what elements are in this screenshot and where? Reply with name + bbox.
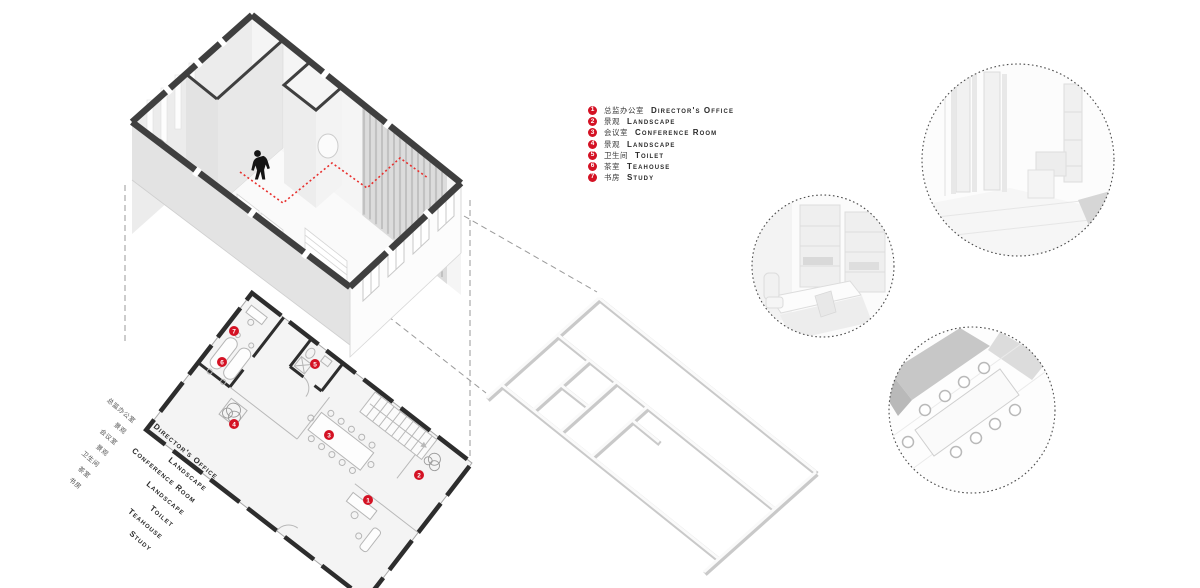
- legend-en: Landscape: [627, 140, 675, 149]
- legend-item: 6 茶室 Teahouse: [588, 161, 734, 172]
- legend-zh: 总监办公室: [604, 105, 644, 116]
- framing-diagram: [487, 298, 817, 574]
- legend-zh: 会议室: [604, 127, 628, 138]
- board-drawing: 1 2 3 4 5 6 7: [0, 0, 1200, 588]
- plan-marker-2: 2: [414, 470, 424, 480]
- svg-text:1: 1: [366, 497, 370, 504]
- legend-badge-7: 7: [588, 173, 597, 182]
- legend-badge-5: 5: [588, 151, 597, 160]
- plan-marker-1: 1: [363, 495, 373, 505]
- legend-en: Landscape: [627, 117, 675, 126]
- legend-zh: 卫生间: [604, 150, 628, 161]
- detail-circle-office-window: [920, 62, 1116, 258]
- svg-text:7: 7: [232, 328, 236, 335]
- legend-zh: 景观: [604, 116, 620, 127]
- svg-text:2: 2: [417, 472, 421, 479]
- legend: 1 总监办公室 Director's Office 2 景观 Landscape…: [588, 105, 734, 183]
- legend-badge-1: 1: [588, 106, 597, 115]
- legend-en: Teahouse: [627, 162, 670, 171]
- legend-badge-4: 4: [588, 140, 597, 149]
- axonometric-view: [132, 15, 461, 357]
- plan-marker-3: 3: [324, 430, 334, 440]
- legend-item: 4 景观 Landscape: [588, 139, 734, 150]
- legend-item: 3 会议室 Conference Room: [588, 127, 734, 138]
- legend-badge-2: 2: [588, 117, 597, 126]
- legend-item: 1 总监办公室 Director's Office: [588, 105, 734, 116]
- legend-item: 5 卫生间 Toilet: [588, 150, 734, 161]
- legend-zh: 书房: [604, 172, 620, 183]
- presentation-board: 1 2 3 4 5 6 7: [0, 0, 1200, 588]
- svg-text:3: 3: [327, 432, 331, 439]
- detail-circle-study: [750, 193, 896, 340]
- legend-badge-6: 6: [588, 162, 597, 171]
- legend-item: 2 景观 Landscape: [588, 116, 734, 127]
- floor-plan: [146, 293, 472, 588]
- plan-marker-6: 6: [217, 357, 227, 367]
- detail-circle-conference: [885, 326, 1056, 494]
- plan-marker-5: 5: [310, 359, 320, 369]
- porthole-window: [318, 134, 338, 158]
- legend-badge-3: 3: [588, 128, 597, 137]
- legend-zh: 茶室: [604, 161, 620, 172]
- svg-text:5: 5: [313, 361, 317, 368]
- legend-en: Study: [627, 173, 654, 182]
- legend-en: Director's Office: [651, 106, 734, 115]
- legend-zh: 景观: [604, 139, 620, 150]
- svg-text:6: 6: [220, 359, 224, 366]
- plan-marker-4: 4: [229, 419, 239, 429]
- legend-en: Toilet: [635, 151, 664, 160]
- plan-marker-7: 7: [229, 326, 239, 336]
- legend-item: 7 书房 Study: [588, 172, 734, 183]
- svg-text:4: 4: [232, 421, 236, 428]
- legend-en: Conference Room: [635, 128, 717, 137]
